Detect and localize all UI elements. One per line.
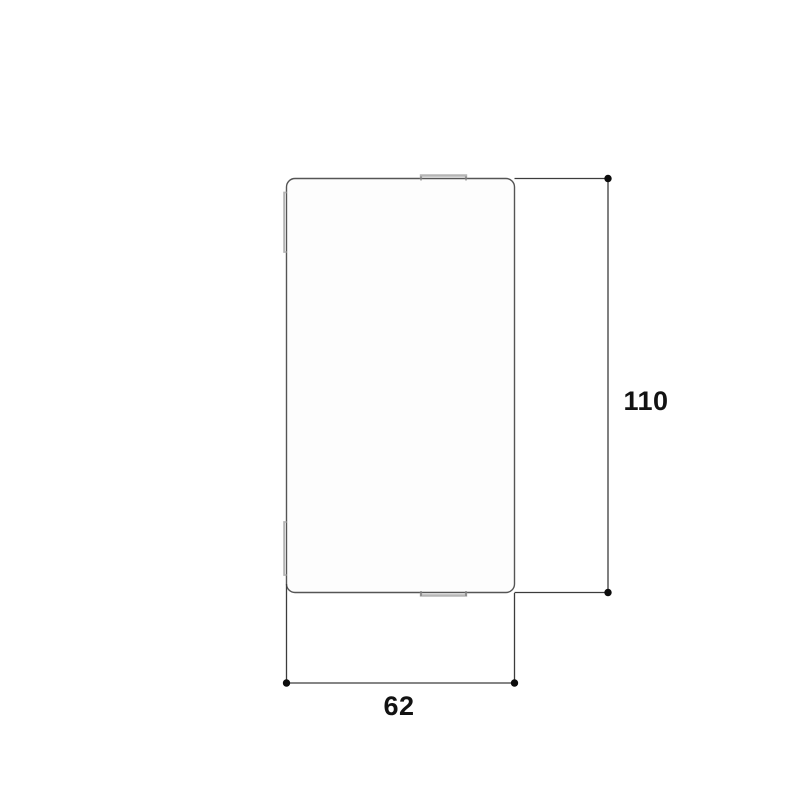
width-dimension-label: 62 — [383, 691, 414, 721]
height-endpoint-dot-top — [604, 175, 611, 182]
height-dimension-label: 110 — [623, 386, 668, 416]
panel-outline — [287, 179, 515, 593]
diagram-canvas: 110 62 — [0, 0, 800, 800]
dimension-diagram: 110 62 — [0, 0, 800, 800]
width-endpoint-dot-left — [283, 679, 290, 686]
height-endpoint-dot-bottom — [604, 589, 611, 596]
width-endpoint-dot-right — [511, 679, 518, 686]
